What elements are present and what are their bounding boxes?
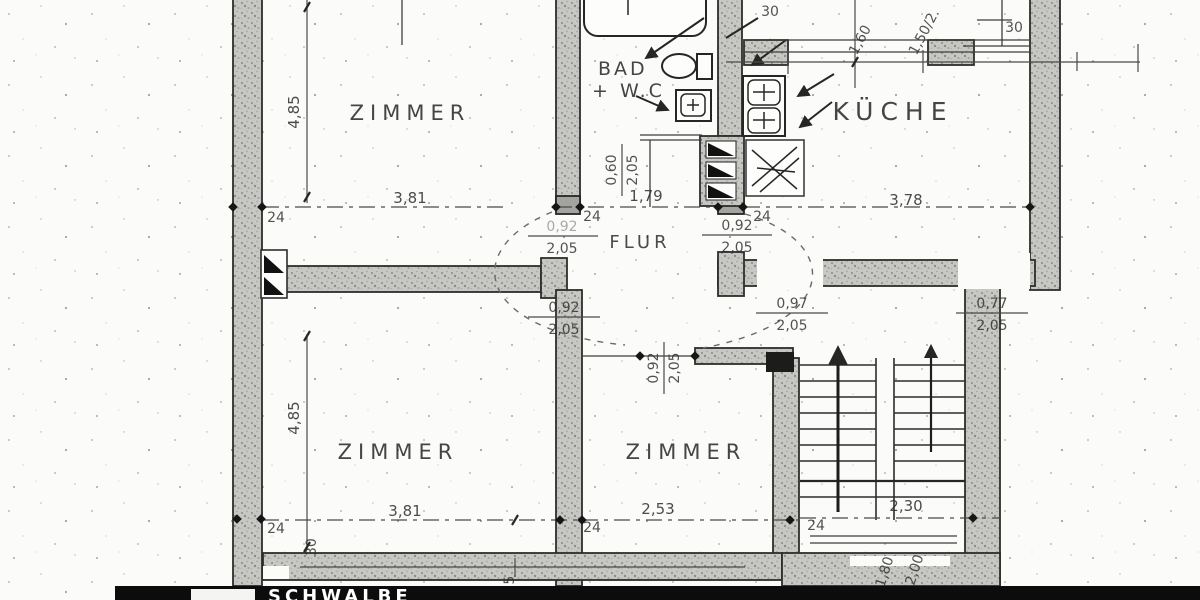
svg-text:2,05: 2,05 bbox=[667, 352, 683, 383]
dim-24-top-mid: 24 bbox=[583, 209, 601, 225]
footer-bar: SCHWALBE bbox=[115, 586, 1200, 600]
stair-door-block bbox=[766, 352, 794, 372]
dim-485-bottom-room: 4,85 bbox=[285, 401, 303, 434]
dim-24-top-left: 24 bbox=[267, 210, 285, 226]
footer-logo-box bbox=[191, 589, 255, 600]
wall-zimmer-bad bbox=[556, 0, 580, 207]
duct-shaft bbox=[700, 136, 744, 206]
svg-text:0,92: 0,92 bbox=[546, 219, 577, 235]
dim-179-top: 1,79 bbox=[629, 187, 662, 205]
dim-230-bottom: 2,30 bbox=[889, 497, 922, 515]
wall-pier-dark-left bbox=[556, 196, 580, 214]
dim-378-top: 3,78 bbox=[889, 191, 922, 209]
room-label-kueche: KÜCHE bbox=[832, 97, 953, 126]
dim-253-bottom: 2,53 bbox=[641, 500, 674, 518]
footer-logo-text: SCHWALBE bbox=[268, 586, 412, 600]
room-label-zimmer-top-left: ZIMMER bbox=[350, 101, 471, 125]
room-label-flur: FLUR bbox=[609, 232, 670, 253]
exterior-wall-right-upper bbox=[1030, 0, 1060, 290]
dim-24-bottom-stair: 24 bbox=[807, 518, 825, 534]
dim-24-bottom-left: 24 bbox=[267, 521, 285, 537]
corridor-wall-right-endblock bbox=[718, 252, 744, 296]
washbasin bbox=[676, 90, 711, 121]
dim-381-bottom: 3,81 bbox=[388, 502, 421, 520]
svg-text:0,92: 0,92 bbox=[721, 218, 752, 234]
svg-text:2,05: 2,05 bbox=[721, 240, 752, 256]
toilet bbox=[662, 54, 712, 79]
svg-text:0,97: 0,97 bbox=[776, 296, 807, 312]
svg-text:2,05: 2,05 bbox=[625, 154, 641, 185]
room-label-bad: BAD bbox=[598, 58, 648, 80]
wall-notch-bottom-left bbox=[263, 566, 289, 579]
room-label-zimmer-bottom-mid: ZIMMER bbox=[626, 440, 747, 464]
dim-30-bottom-left: 30 bbox=[304, 538, 320, 556]
svg-text:0,60: 0,60 bbox=[604, 154, 620, 185]
dim-24-bottom-mid: 24 bbox=[583, 520, 601, 536]
dim-24-top-right: 24 bbox=[753, 209, 771, 225]
exterior-wall-left bbox=[233, 0, 262, 586]
chimney-flues bbox=[261, 250, 287, 298]
wall-bad-kueche bbox=[718, 0, 742, 136]
dim-30-window-left: 30 bbox=[761, 4, 779, 20]
svg-text:2,05: 2,05 bbox=[976, 318, 1007, 334]
kitchen-sink-unit bbox=[743, 76, 785, 136]
stairwell-wall-left bbox=[773, 358, 799, 560]
corridor-wall-left bbox=[283, 266, 541, 292]
floorplan-scan: ZIMMER ZIMMER ZIMMER KÜCHE BAD + W.C FLU… bbox=[0, 0, 1200, 600]
svg-text:0,92: 0,92 bbox=[646, 352, 662, 383]
dim-485-top-room: 4,85 bbox=[285, 95, 303, 128]
room-label-bad-wc: + W.C bbox=[592, 80, 665, 102]
stove-symbol bbox=[746, 140, 804, 196]
svg-text:2,05: 2,05 bbox=[548, 322, 579, 338]
svg-text:2,05: 2,05 bbox=[776, 318, 807, 334]
svg-text:2,05: 2,05 bbox=[546, 241, 577, 257]
bathtub bbox=[584, 0, 706, 36]
dim-381-top: 3,81 bbox=[393, 189, 426, 207]
room-label-zimmer-bottom-left: ZIMMER bbox=[338, 440, 459, 464]
svg-text:0,92: 0,92 bbox=[548, 300, 579, 316]
floorplan-drawing: ZIMMER ZIMMER ZIMMER KÜCHE BAD + W.C FLU… bbox=[0, 0, 1200, 600]
door-opening-077 bbox=[958, 253, 1030, 289]
stair-bottom-step-notch bbox=[850, 556, 950, 566]
svg-text:0,77: 0,77 bbox=[976, 296, 1007, 312]
dim-30-window-right: 30 bbox=[1005, 20, 1023, 36]
